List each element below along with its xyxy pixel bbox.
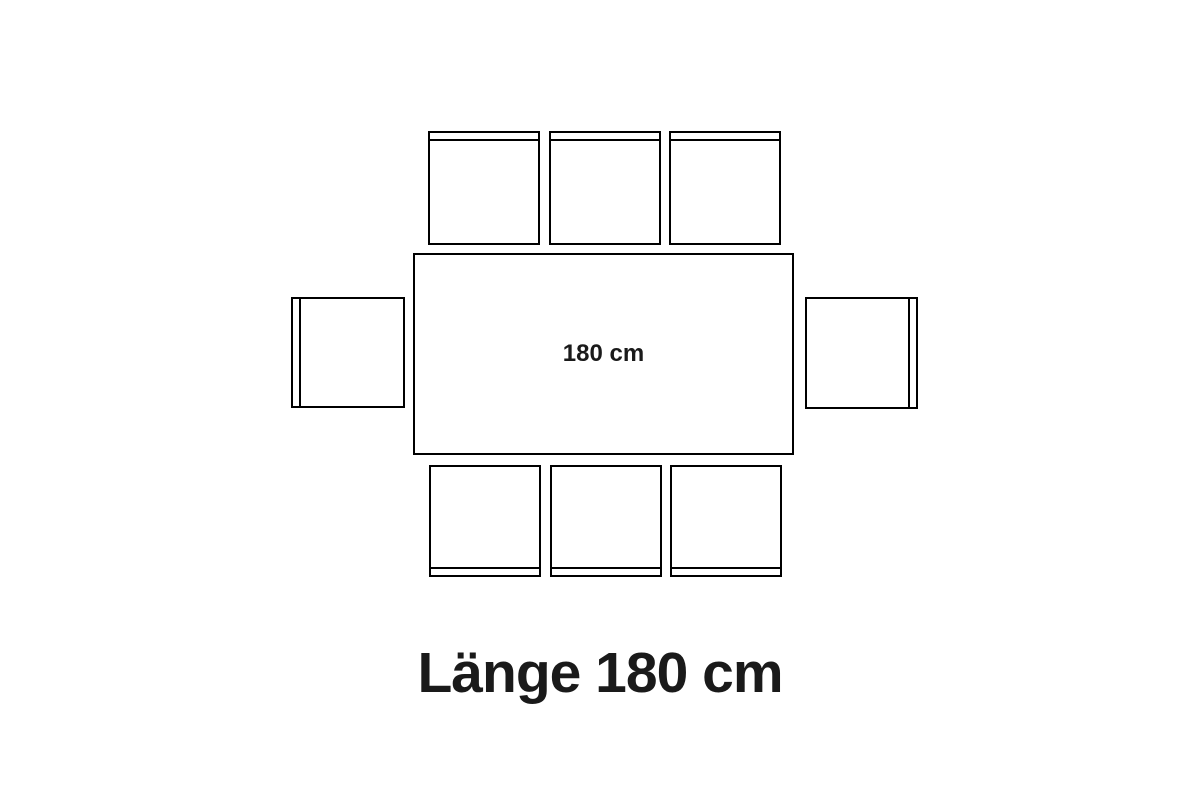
chair-top-2 (549, 131, 661, 245)
length-caption: Länge 180 cm (0, 640, 1200, 706)
chair-bottom-2 (550, 465, 662, 577)
chair-bottom-3 (670, 465, 782, 577)
chair-backrest (293, 299, 301, 406)
chair-backrest (671, 133, 779, 141)
chair-backrest (552, 567, 660, 575)
chair-top-3 (669, 131, 781, 245)
chair-top-1 (428, 131, 540, 245)
chair-bottom-1 (429, 465, 541, 577)
table-length-label: 180 cm (563, 340, 644, 368)
chair-backrest (672, 567, 780, 575)
chair-backrest (430, 133, 538, 141)
chair-left (291, 297, 405, 408)
table: 180 cm (413, 253, 794, 455)
chair-right (805, 297, 918, 409)
chair-backrest (551, 133, 659, 141)
chair-backrest (908, 299, 916, 407)
chair-backrest (431, 567, 539, 575)
seating-diagram: 180 cm Länge 180 cm (0, 0, 1200, 800)
